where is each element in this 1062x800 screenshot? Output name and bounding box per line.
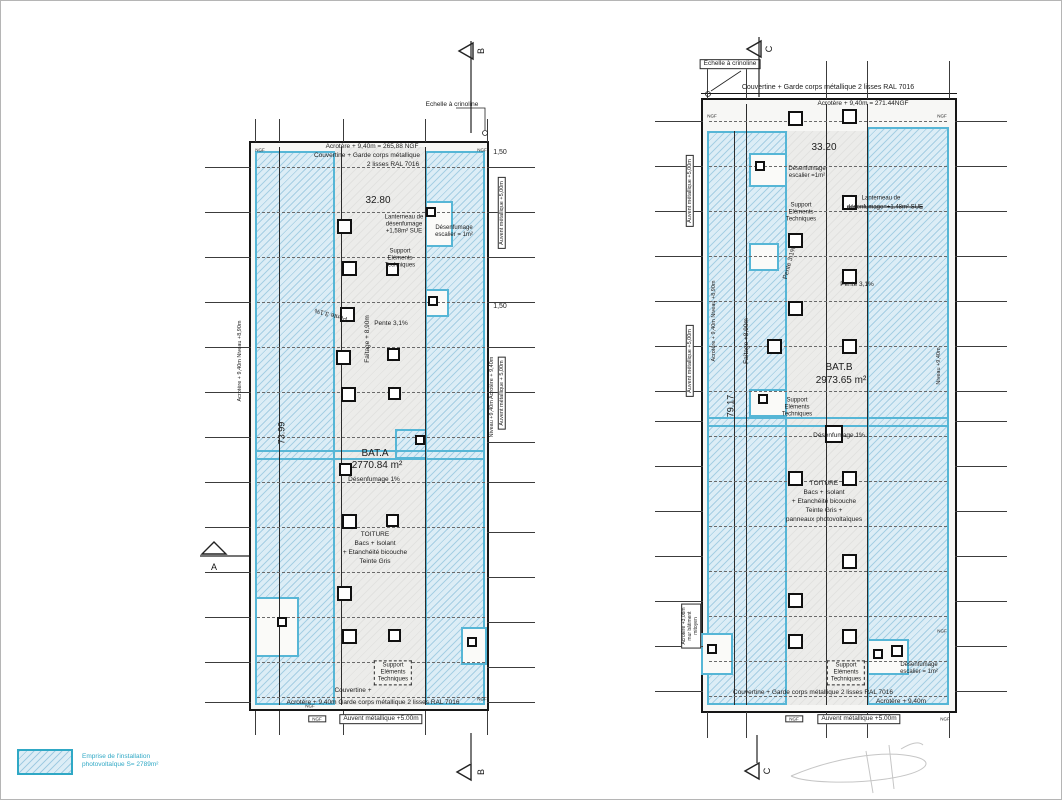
grid-tick — [487, 442, 535, 443]
rooflight-square — [873, 649, 883, 659]
grid-tick — [343, 119, 344, 142]
rooflight-square — [891, 645, 903, 657]
grid-tick — [955, 391, 1007, 392]
annotation-text: Acrotère + 9,40m Niveau +8,90m — [237, 320, 243, 401]
annotation-text: Désenfumage escalier = 1m² — [435, 225, 473, 239]
structure-line — [826, 104, 827, 705]
rooflight-square — [755, 161, 765, 171]
pv-zone — [867, 127, 949, 705]
signature-scribble — [866, 751, 873, 793]
grid-tick — [826, 61, 827, 99]
rooflight-square — [426, 207, 436, 217]
grid-tick — [655, 121, 703, 122]
rooflight-square — [842, 554, 857, 569]
rooflight-square — [386, 514, 399, 527]
annotation-text: 32.80 — [365, 195, 390, 207]
grid-tick — [955, 256, 1007, 257]
legend: Emprise de l'installation photovoltaïque… — [17, 749, 158, 775]
rooflight-square — [788, 111, 803, 126]
grid-tick — [955, 556, 1007, 557]
annotation-text: Support Eléments Techniques — [374, 660, 412, 685]
annotation-text: Désenfumage 1% — [813, 432, 865, 440]
roof-centerline — [257, 617, 485, 618]
grid-tick — [205, 212, 251, 213]
legend-label: Emprise de l'installation photovoltaïque… — [82, 749, 158, 770]
annotation-text: Pente 3,1% — [374, 320, 408, 328]
annotation-text: NGF — [940, 716, 950, 721]
annotation-text: NGF — [707, 113, 717, 118]
legend-line1: Emprise de l'installation — [82, 753, 150, 760]
roof-centerline — [709, 256, 947, 257]
annotation-text: Teinte Gris — [359, 558, 390, 566]
annotation-text: panneaux photovoltaïques — [786, 516, 862, 524]
annotation-text: NGF — [305, 703, 315, 708]
annotation-text: Echelle à crinoline — [426, 101, 479, 109]
grid-tick — [707, 712, 708, 738]
annotation-text: 1,50 — [493, 303, 507, 311]
zone-notch — [701, 633, 733, 675]
grid-tick — [205, 347, 251, 348]
rooflight-square — [842, 629, 857, 644]
grid-tick — [655, 601, 703, 602]
legend-line2: photovoltaïque S= 2789m² — [82, 761, 158, 768]
annotation-text: Lanterneau de désenfumage +1,58m² SUE — [385, 214, 424, 235]
structure-line — [425, 147, 426, 705]
annotation-text: 2770.84 m² — [352, 460, 403, 472]
grid-tick — [205, 702, 251, 703]
roof-centerline — [709, 571, 947, 572]
annotation-text: Acrotère +3,08m mur bâtiment mitoyen — [681, 603, 701, 648]
grid-tick — [655, 301, 703, 302]
section-marker-triangle — [202, 542, 226, 554]
annotation-text: Pente 3,1% — [840, 281, 874, 289]
grid-tick — [867, 61, 868, 99]
grid-tick — [487, 212, 535, 213]
roof-centerline — [257, 392, 485, 393]
roof-centerline — [709, 121, 947, 122]
rooflight-square — [842, 339, 857, 354]
annotation-text: + Etanchéité bicouche — [792, 498, 856, 506]
annotation-text: NGF — [785, 715, 803, 722]
grid-tick — [425, 119, 426, 142]
annotation-text: Echelle à crinoline — [700, 59, 761, 69]
grid-tick — [487, 257, 535, 258]
annotation-text: NGF — [937, 628, 947, 633]
grid-tick — [487, 167, 535, 168]
roof-centerline — [257, 437, 485, 438]
section-marker-triangle — [745, 763, 759, 779]
roof-centerline — [257, 527, 485, 528]
annotation-text: Bacs + Isolant — [803, 489, 844, 497]
zone-notch — [749, 243, 779, 271]
annotation-text: NGF — [477, 696, 487, 701]
rooflight-square — [342, 514, 357, 529]
grid-tick — [279, 711, 280, 735]
annotation-text: Niveau +9,40m Acrotère + 9,40m — [489, 357, 495, 438]
grid-tick — [205, 257, 251, 258]
grid-tick — [655, 211, 703, 212]
annotation-text: Support Eléments Techniques — [782, 397, 812, 418]
annotation-text: Lanterneau de — [862, 195, 901, 202]
grid-tick — [955, 346, 1007, 347]
grid-tick — [255, 119, 256, 142]
rooflight-square — [842, 471, 857, 486]
grid-tick — [955, 601, 1007, 602]
grid-tick — [487, 347, 535, 348]
zone-notch — [255, 597, 299, 657]
rooflight-square — [341, 387, 356, 402]
grid-tick — [487, 667, 535, 668]
section-marker-label: B — [476, 769, 486, 775]
roof-centerline — [257, 662, 485, 663]
annotation-text: désenfumage=+1.48m² SUE — [847, 204, 923, 211]
rooflight-square — [707, 644, 717, 654]
grid-tick — [487, 711, 488, 735]
grid-tick — [949, 61, 950, 99]
annotation-text: Acrotère + 9,40m = 265,88 NGF — [326, 143, 419, 151]
annotation-text: BAT.B — [825, 362, 852, 374]
annotation-text: 73.99 — [277, 422, 288, 445]
section-marker-triangle — [747, 41, 761, 57]
rooflight-square — [337, 219, 352, 234]
grid-tick — [655, 466, 703, 467]
rooflight-square — [758, 394, 768, 404]
grid-tick — [205, 167, 251, 168]
grid-tick — [255, 711, 256, 735]
annotation-text: + Etanchéité bicouche — [343, 549, 407, 557]
grid-tick — [487, 622, 535, 623]
grid-tick — [205, 617, 251, 618]
structure-line — [701, 93, 957, 94]
rooflight-square — [388, 387, 401, 400]
rooflight-square — [788, 634, 803, 649]
annotation-text: Couvertine + Garde corps métallique 2 li… — [742, 84, 914, 92]
rooflight-square — [767, 339, 782, 354]
annotation-text: Couvertine + Garde corps métallique 2 li… — [733, 689, 893, 697]
annotation-text: Couvertine + — [334, 687, 371, 695]
grid-tick — [655, 556, 703, 557]
annotation-text: NGF — [937, 113, 947, 118]
grid-tick — [425, 711, 426, 735]
annotation-text: 1,50 — [493, 149, 507, 157]
annotation-text: Acrotère + 9,40m Niveau +8,90m — [711, 280, 717, 361]
rooflight-square — [415, 435, 425, 445]
annotation-text: Faîtage +8,90m — [743, 318, 751, 364]
annotation-text: Support Eléments Techniques — [786, 202, 816, 223]
section-marker-label: B — [476, 48, 486, 54]
annotation-text: Désenfumage escalier =1m² — [788, 166, 825, 180]
leader-line — [456, 108, 485, 130]
annotation-text: 33.20 — [811, 142, 836, 154]
annotation-text: NGF — [308, 715, 326, 722]
grid-tick — [487, 532, 535, 533]
annotation-text: Faîtage + 8,90m — [364, 315, 372, 363]
leader-line — [711, 71, 741, 91]
grid-tick — [955, 421, 1007, 422]
grid-tick — [487, 482, 535, 483]
annotation-text: 2 lisses RAL 7016 — [367, 161, 419, 169]
annotation-text: Désenfumage 1% — [348, 476, 400, 484]
annotation-text: Désenfumage escalier = 1m² — [900, 662, 938, 676]
annotation-text: Auvent métallique +5,00m — [686, 325, 694, 397]
grid-tick — [955, 166, 1007, 167]
annotation-text: NGF — [477, 147, 487, 152]
grid-tick — [655, 166, 703, 167]
grid-tick — [655, 511, 703, 512]
roof-centerline — [257, 212, 485, 213]
roof-centerline — [709, 301, 947, 302]
annotation-text: Niveau +9,40m — [936, 347, 942, 384]
grid-tick — [955, 511, 1007, 512]
grid-tick — [655, 391, 703, 392]
roof-centerline — [709, 526, 947, 527]
annotation-text: 79.17 — [726, 395, 737, 418]
grid-tick — [655, 421, 703, 422]
grid-tick — [279, 119, 280, 142]
rooflight-square — [337, 586, 352, 601]
grid-tick — [205, 572, 251, 573]
section-marker-label: A — [211, 562, 217, 572]
annotation-text: Support Eléments Techniques — [827, 660, 865, 685]
roof-centerline — [257, 302, 485, 303]
grid-tick — [655, 691, 703, 692]
roof-centerline — [257, 257, 485, 258]
annotation-text: Auvent métallique +5,00m — [686, 155, 694, 227]
rooflight-square — [788, 471, 803, 486]
rooflight-square — [339, 463, 352, 476]
annotation-text: BAT.A — [361, 448, 388, 460]
rooflight-square — [342, 629, 357, 644]
section-marker-label: C — [764, 45, 774, 52]
grid-tick — [205, 482, 251, 483]
annotation-text: Auvent métallique +5.00m — [817, 714, 900, 724]
grid-tick — [955, 691, 1007, 692]
rooflight-square — [428, 296, 438, 306]
signature-scribble — [791, 754, 926, 782]
rooflight-square — [788, 593, 803, 608]
annotation-text: Acrotère + 9,40m = 271.44NGF — [817, 100, 908, 108]
grid-tick — [205, 527, 251, 528]
rooflight-square — [388, 629, 401, 642]
annotation-text: TOITURE — [810, 480, 838, 488]
grid-tick — [487, 577, 535, 578]
annotation-text: Auvent métallique + 5,00m — [498, 356, 506, 429]
signature-scribble — [901, 743, 923, 749]
grid-tick — [955, 301, 1007, 302]
rooflight-square — [842, 109, 857, 124]
annotation-text: Teinte Gris + — [806, 507, 843, 515]
annotation-text: NGF — [255, 147, 265, 152]
annotation-text: Auvent métallique +5.00m — [339, 714, 422, 724]
grid-tick — [955, 121, 1007, 122]
structure-line — [734, 131, 735, 705]
grid-tick — [205, 302, 251, 303]
grid-tick — [746, 712, 747, 738]
grid-tick — [487, 702, 535, 703]
annotation-text: TOITURE — [361, 531, 389, 539]
structure-line — [746, 104, 747, 705]
rooflight-square — [387, 348, 400, 361]
rooflight-square — [277, 617, 287, 627]
annotation-text: Acrotère + 9,40m — [876, 698, 926, 706]
grid-tick — [487, 119, 488, 142]
grid-tick — [955, 466, 1007, 467]
section-marker-triangle — [459, 43, 473, 59]
grid-tick — [205, 392, 251, 393]
annotation-text: Couvertine + Garde corps métallique — [314, 152, 420, 160]
rooflight-square — [788, 301, 803, 316]
section-marker-triangle — [457, 764, 471, 780]
roof-centerline — [709, 166, 947, 167]
section-marker-label: C — [762, 767, 772, 774]
signature-scribble — [889, 745, 894, 789]
roof-centerline — [709, 616, 947, 617]
annotation-text: Bacs + Isolant — [354, 540, 395, 548]
rooflight-square — [342, 261, 357, 276]
grid-tick — [955, 211, 1007, 212]
grid-tick — [655, 256, 703, 257]
grid-tick — [205, 662, 251, 663]
structure-line — [867, 104, 868, 705]
rooflight-square — [467, 637, 477, 647]
roof-centerline — [257, 572, 485, 573]
grid-tick — [955, 646, 1007, 647]
annotation-text: Support Eléments Techniques — [385, 248, 415, 269]
grid-tick — [205, 437, 251, 438]
annotation-text: Auvent métallique +5,00m — [498, 177, 506, 249]
pv-hatch-swatch — [17, 749, 73, 775]
grid-tick — [655, 346, 703, 347]
rooflight-square — [336, 350, 351, 365]
roof-plan-canvas: Emprise de l'installation photovoltaïque… — [0, 0, 1062, 800]
annotation-text: 2973.65 m² — [816, 375, 867, 387]
roof-centerline — [257, 697, 485, 698]
roof-centerline — [709, 391, 947, 392]
